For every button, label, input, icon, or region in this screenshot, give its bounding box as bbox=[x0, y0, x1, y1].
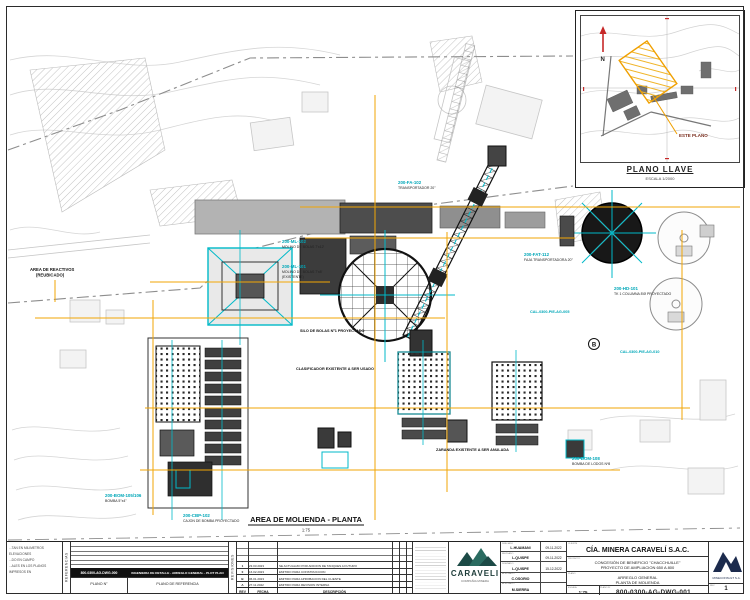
sheet-frame bbox=[6, 6, 744, 594]
drawing-sheet: B 200-FA-102 TRANSPORTADOR 20" 200-ML-10… bbox=[0, 0, 750, 600]
